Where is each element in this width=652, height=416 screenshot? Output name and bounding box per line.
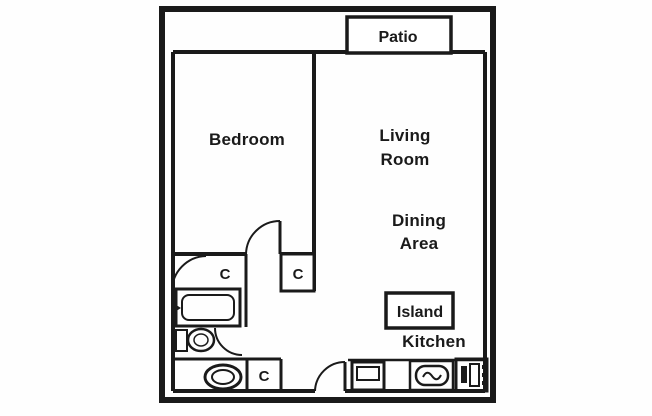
entry-door-swing (315, 362, 345, 391)
floor-plan-drawing: Patio Island Bedroom Living Room Dining … (0, 0, 652, 416)
bedroom-door-swing (246, 221, 280, 254)
stove-icon (410, 361, 453, 390)
bathtub-icon (173, 289, 240, 326)
kitchen-sink-icon (352, 362, 384, 390)
closet-door-swing (172, 256, 206, 291)
dining-area-label-line1: Dining (392, 211, 446, 230)
bath-closet-label: C (220, 266, 231, 283)
living-room-label-line1: Living (379, 126, 430, 145)
island-label: Island (397, 304, 443, 321)
kitchen-label: Kitchen (402, 332, 466, 351)
bedroom-label: Bedroom (209, 130, 285, 149)
hall-closet-label: C (293, 266, 304, 283)
bathroom-door-swing (215, 328, 242, 355)
range-icon (456, 359, 487, 391)
vanity-sink-icon (205, 365, 241, 389)
toilet-icon (176, 329, 214, 351)
patio-label: Patio (378, 29, 417, 46)
living-room-label-line2: Room (381, 150, 430, 169)
floor-plan: Patio Island Bedroom Living Room Dining … (0, 0, 652, 416)
dining-area-label-line2: Area (400, 234, 439, 253)
entry-closet-label: C (259, 368, 270, 385)
